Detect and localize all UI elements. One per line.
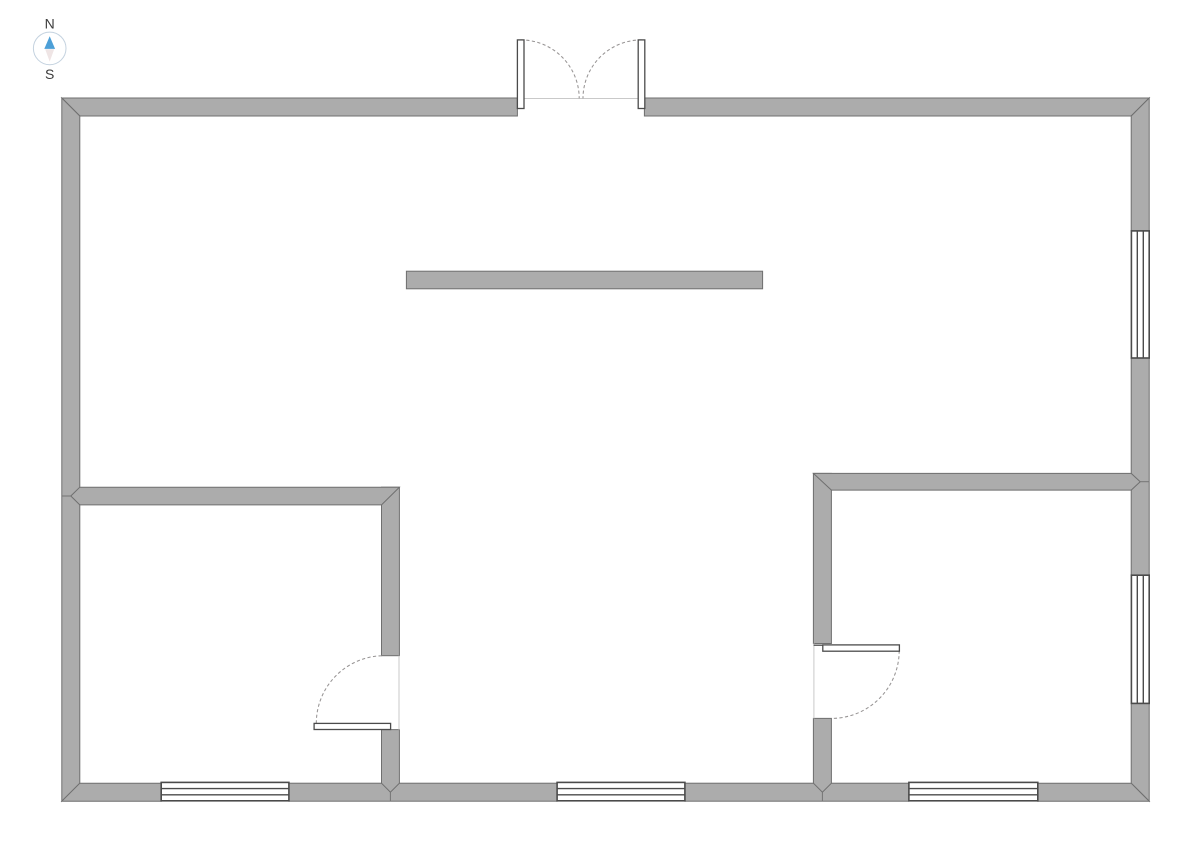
svg-text:N: N — [45, 16, 55, 32]
svg-text:S: S — [45, 66, 54, 82]
